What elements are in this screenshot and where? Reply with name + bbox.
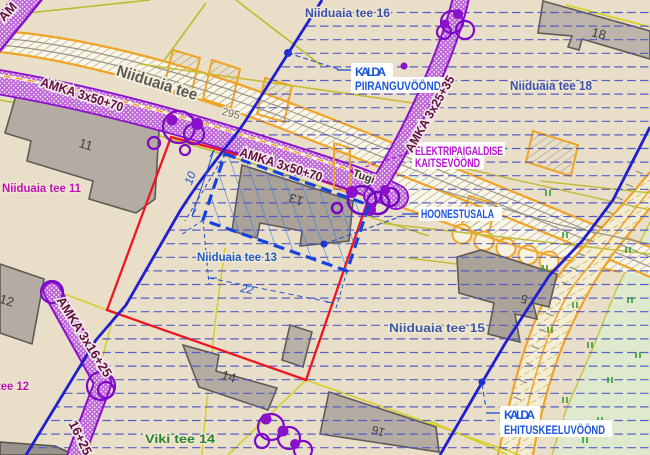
- svg-text:HOONESTUSALA: HOONESTUSALA: [421, 209, 494, 221]
- svg-text:Niiduaia tee 13: Niiduaia tee 13: [197, 250, 277, 264]
- svg-text:Niiduaia tee 16: Niiduaia tee 16: [305, 6, 390, 20]
- svg-text:KALDA: KALDA: [355, 65, 386, 79]
- svg-text:Niiduaia tee 18: Niiduaia tee 18: [510, 79, 592, 93]
- svg-text:KAITSEVÖÖND: KAITSEVÖÖND: [415, 155, 480, 170]
- svg-text:EHITUSKEELUVÖÖND: EHITUSKEELUVÖÖND: [504, 422, 605, 437]
- svg-text:Niiduaia tee 12: Niiduaia tee 12: [0, 379, 29, 393]
- svg-text:Viki tee 14: Viki tee 14: [145, 432, 215, 446]
- svg-text:Niiduaia tee 11: Niiduaia tee 11: [2, 181, 81, 195]
- svg-text:PIIRANGUVÖÖND: PIIRANGUVÖÖND: [355, 78, 441, 93]
- svg-text:Niiduaia tee 15: Niiduaia tee 15: [389, 321, 485, 335]
- svg-text:KALDA: KALDA: [504, 408, 535, 422]
